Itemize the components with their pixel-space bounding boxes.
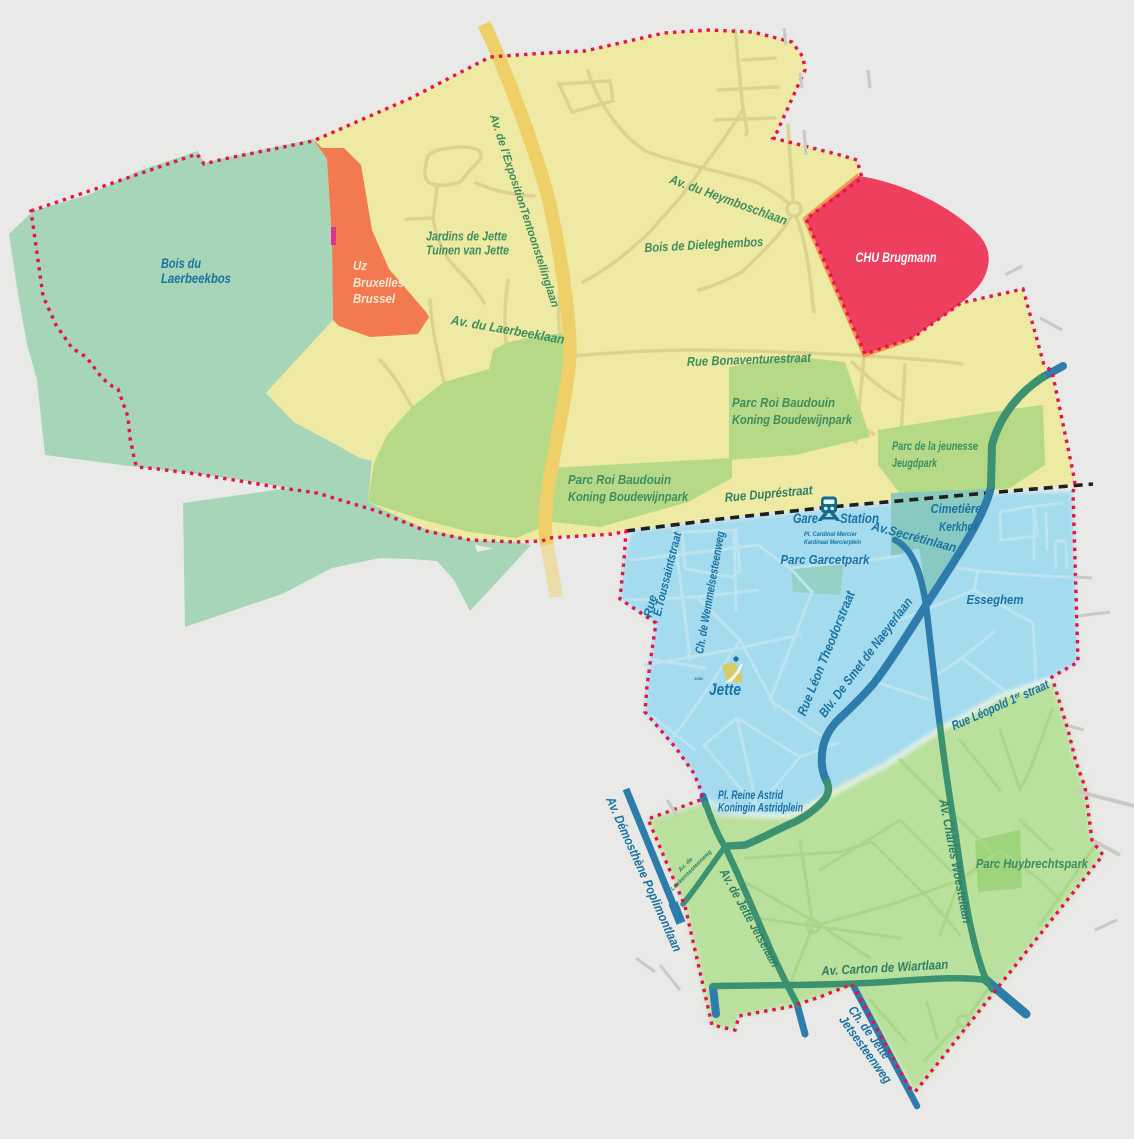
svg-text:CHU Brugmann: CHU Brugmann — [856, 250, 937, 265]
svg-text:Pl. Cardinal Mercier: Pl. Cardinal Mercier — [804, 531, 857, 538]
svg-text:Parc Huybrechtspark: Parc Huybrechtspark — [976, 856, 1089, 871]
svg-text:Bois du: Bois du — [161, 256, 202, 271]
svg-text:Tuinen van Jette: Tuinen van Jette — [426, 243, 509, 258]
svg-text:Koning Boudewijnpark: Koning Boudewijnpark — [732, 413, 853, 427]
svg-text:Parc de la jeunesse: Parc de la jeunesse — [892, 439, 978, 453]
svg-text:Kardinaal Mercierplein: Kardinaal Mercierplein — [804, 539, 861, 546]
svg-text:Parc Roi Baudouin: Parc Roi Baudouin — [732, 396, 835, 410]
svg-text:Cimetière: Cimetière — [931, 501, 982, 516]
svg-text:Bruxelles: Bruxelles — [353, 276, 404, 290]
svg-text:Koningin Astridplein: Koningin Astridplein — [718, 801, 803, 815]
svg-text:Laerbeekbos: Laerbeekbos — [161, 271, 231, 286]
svg-text:Uz: Uz — [353, 259, 368, 273]
svg-text:Parc Garcetpark: Parc Garcetpark — [781, 552, 871, 567]
svg-text:Jardins de Jette: Jardins de Jette — [426, 229, 507, 244]
svg-text:Brussel: Brussel — [353, 292, 395, 306]
svg-text:Koning Boudewijnpark: Koning Boudewijnpark — [568, 490, 689, 504]
svg-text:Esseghem: Esseghem — [967, 592, 1024, 607]
svg-text:Kerkhof: Kerkhof — [939, 519, 978, 534]
svg-text:1090: 1090 — [694, 676, 704, 681]
svg-text:Gare: Gare — [793, 510, 818, 526]
svg-text:Jeugdpark: Jeugdpark — [892, 456, 938, 470]
svg-text:Jette: Jette — [709, 681, 741, 699]
svg-text:Parc Roi Baudouin: Parc Roi Baudouin — [568, 473, 671, 487]
